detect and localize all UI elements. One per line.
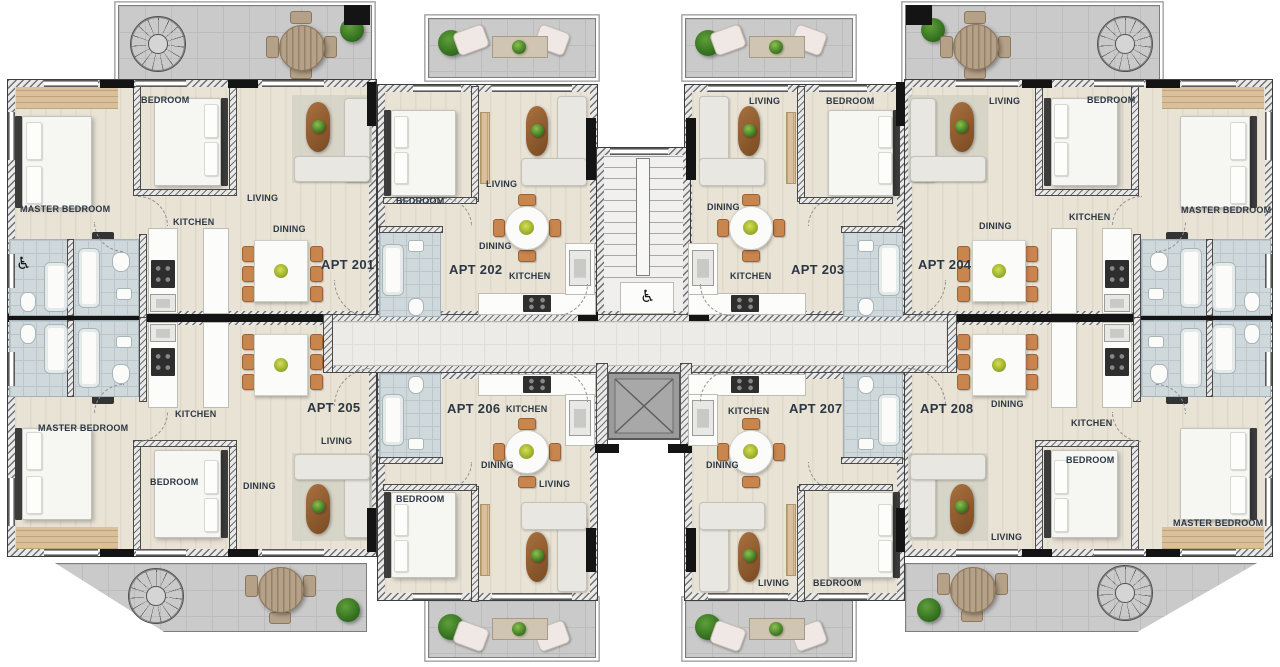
window: [1265, 112, 1272, 160]
window: [136, 80, 186, 87]
wall-pier: [344, 5, 370, 25]
wall-pier: [228, 80, 258, 88]
wall-pier: [367, 82, 376, 126]
window: [262, 549, 324, 556]
window: [8, 112, 15, 160]
window: [8, 478, 15, 526]
facade-openings: [0, 0, 1280, 667]
floor-plan: ♿: [0, 0, 1280, 667]
wall-pier: [896, 82, 905, 126]
window: [1094, 549, 1144, 556]
window: [708, 593, 788, 600]
wall-pier: [1022, 80, 1052, 88]
window: [1182, 549, 1236, 556]
wall-pier: [686, 118, 696, 180]
wall-pier: [896, 508, 905, 552]
wall-pier: [906, 5, 932, 25]
window: [1094, 80, 1144, 87]
wall-pier: [1022, 549, 1052, 557]
window: [492, 85, 572, 92]
wall-pier: [1146, 80, 1180, 88]
window: [492, 593, 572, 600]
window: [413, 85, 461, 92]
wall-pier: [686, 528, 696, 572]
window: [819, 85, 867, 92]
window: [136, 549, 186, 556]
wall-pier: [367, 508, 376, 552]
window: [1265, 352, 1272, 386]
window: [819, 593, 867, 600]
window: [956, 80, 1018, 87]
wall-pier: [100, 80, 134, 88]
window: [44, 80, 98, 87]
window: [8, 352, 15, 386]
window: [1265, 254, 1272, 288]
wall-pier: [1146, 549, 1180, 557]
window: [44, 549, 98, 556]
window: [1182, 80, 1236, 87]
wall-pier: [228, 549, 258, 557]
window: [1265, 478, 1272, 526]
wall-pier: [100, 549, 134, 557]
wall-pier: [586, 118, 596, 180]
window: [708, 85, 788, 92]
window: [956, 549, 1018, 556]
window: [413, 593, 461, 600]
wall-pier: [586, 528, 596, 572]
window: [8, 254, 15, 288]
window: [262, 80, 324, 87]
